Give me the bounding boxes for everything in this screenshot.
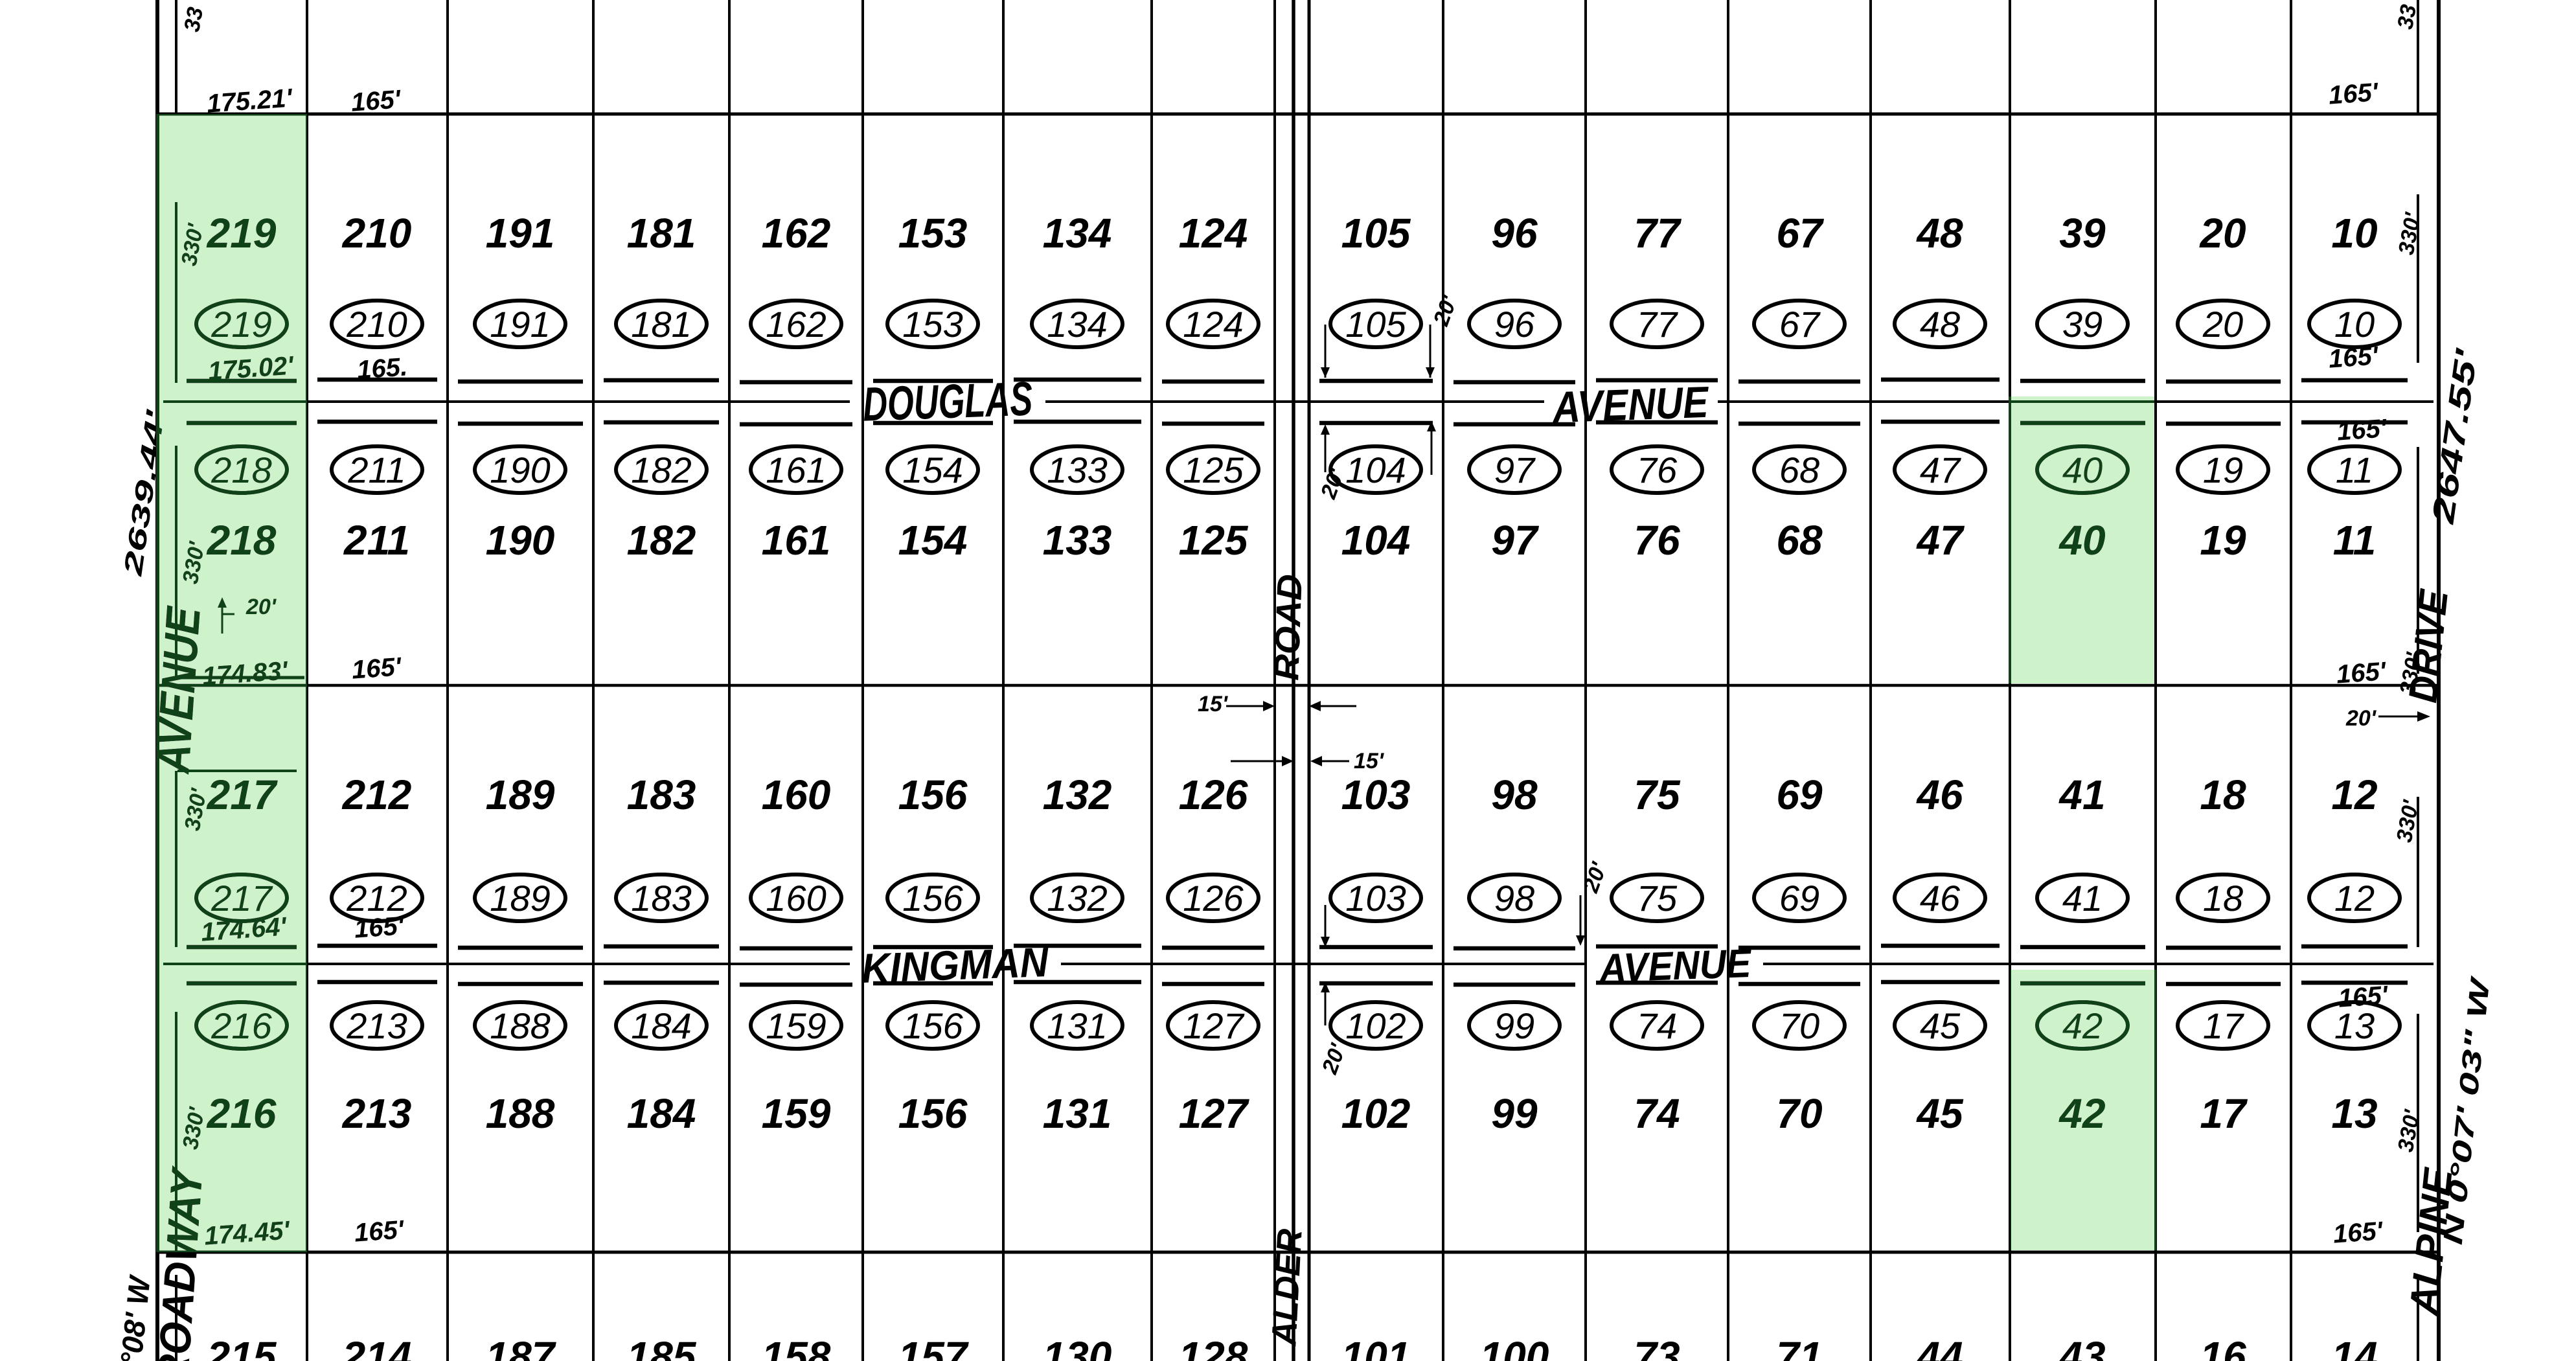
svg-text:157: 157 (898, 1333, 970, 1361)
svg-text:188: 188 (490, 1005, 550, 1046)
svg-text:181: 181 (627, 210, 696, 257)
svg-text:67: 67 (1776, 210, 1825, 257)
svg-text:104: 104 (1341, 517, 1411, 564)
svg-text:ROAD: ROAD (1267, 573, 1310, 681)
svg-text:210: 210 (342, 210, 412, 257)
svg-text:68: 68 (1779, 450, 1819, 490)
svg-text:165': 165' (2336, 657, 2388, 689)
svg-text:125: 125 (1179, 517, 1249, 564)
svg-text:187: 187 (486, 1333, 557, 1361)
svg-text:102: 102 (1341, 1090, 1411, 1137)
svg-text:156: 156 (902, 878, 963, 919)
svg-text:45: 45 (1915, 1090, 1964, 1137)
svg-text:104: 104 (1345, 450, 1406, 490)
svg-text:19: 19 (2200, 517, 2246, 564)
svg-text:161: 161 (766, 450, 826, 490)
svg-text:165': 165' (2336, 414, 2389, 446)
svg-text:162: 162 (762, 210, 831, 257)
svg-text:14: 14 (2331, 1333, 2377, 1361)
svg-text:43: 43 (2058, 1333, 2105, 1361)
svg-text:184: 184 (631, 1005, 691, 1046)
svg-text:103: 103 (1341, 772, 1411, 818)
svg-text:76: 76 (1637, 450, 1678, 490)
svg-text:12: 12 (2334, 878, 2375, 919)
svg-text:189: 189 (486, 772, 555, 818)
svg-text:39: 39 (2059, 210, 2106, 257)
svg-text:160: 160 (762, 772, 831, 818)
svg-text:190: 190 (486, 517, 555, 564)
svg-text:158: 158 (762, 1333, 831, 1361)
svg-text:96: 96 (1494, 304, 1535, 345)
svg-text:102: 102 (1345, 1005, 1406, 1046)
svg-text:46: 46 (1920, 878, 1961, 919)
svg-text:ALDER: ALDER (1264, 1228, 1309, 1348)
svg-text:131: 131 (1043, 1090, 1112, 1137)
svg-text:165': 165' (2328, 341, 2380, 373)
svg-text:175.21': 175.21' (206, 84, 294, 118)
svg-text:126: 126 (1179, 772, 1248, 818)
svg-text:185: 185 (627, 1333, 697, 1361)
svg-text:75: 75 (1634, 772, 1681, 818)
svg-text:69: 69 (1779, 878, 1819, 919)
svg-text:153: 153 (902, 304, 963, 345)
svg-text:156: 156 (902, 1005, 963, 1046)
svg-text:99: 99 (1491, 1090, 1538, 1137)
svg-text:46: 46 (1915, 772, 1963, 818)
svg-text:68: 68 (1776, 517, 1823, 564)
svg-text:133: 133 (1043, 517, 1112, 564)
svg-text:98: 98 (1491, 772, 1538, 818)
svg-text:124: 124 (1179, 210, 1248, 257)
svg-text:75: 75 (1637, 878, 1678, 919)
svg-text:165': 165' (2338, 981, 2390, 1012)
svg-text:211: 211 (343, 517, 410, 564)
svg-text:AVENUE: AVENUE (1551, 378, 1711, 432)
svg-text:183: 183 (627, 772, 696, 818)
svg-text:156: 156 (898, 1090, 968, 1137)
svg-text:128: 128 (1179, 1333, 1248, 1361)
svg-text:97: 97 (1494, 450, 1536, 490)
svg-text:17: 17 (2203, 1005, 2244, 1046)
svg-text:20': 20' (2345, 706, 2377, 731)
svg-text:132: 132 (1047, 878, 1107, 919)
svg-text:67: 67 (1779, 304, 1821, 345)
svg-text:165': 165' (350, 85, 403, 117)
svg-text:18: 18 (2200, 772, 2246, 818)
svg-text:154: 154 (898, 517, 968, 564)
svg-text:127: 127 (1183, 1005, 1244, 1046)
svg-text:153: 153 (898, 210, 968, 257)
svg-text:70: 70 (1779, 1005, 1819, 1046)
svg-text:130: 130 (1043, 1333, 1112, 1361)
svg-text:KINGMAN: KINGMAN (861, 939, 1050, 992)
svg-text:71: 71 (1776, 1333, 1822, 1361)
svg-text:183: 183 (631, 878, 691, 919)
svg-text:70: 70 (1776, 1090, 1822, 1137)
svg-text:77: 77 (1634, 210, 1682, 257)
svg-text:103: 103 (1345, 878, 1406, 919)
svg-text:213: 213 (346, 1005, 407, 1046)
svg-text:97: 97 (1491, 517, 1540, 564)
svg-text:101: 101 (1341, 1333, 1411, 1361)
svg-text:74: 74 (1634, 1090, 1680, 1137)
svg-text:20: 20 (2199, 210, 2246, 257)
svg-text:160: 160 (766, 878, 826, 919)
svg-text:11: 11 (2333, 517, 2376, 564)
svg-text:132: 132 (1043, 772, 1112, 818)
svg-text:96: 96 (1491, 210, 1538, 257)
svg-text:156: 156 (898, 772, 968, 818)
svg-text:10: 10 (2331, 210, 2377, 257)
svg-text:162: 162 (766, 304, 826, 345)
svg-text:69: 69 (1776, 772, 1823, 818)
svg-text:98: 98 (1494, 878, 1534, 919)
svg-text:133: 133 (1047, 450, 1107, 490)
svg-text:165': 165' (2328, 78, 2380, 109)
svg-text:45: 45 (1920, 1005, 1961, 1046)
svg-text:48: 48 (1920, 304, 1960, 345)
svg-text:211: 211 (347, 450, 405, 490)
svg-text:182: 182 (627, 517, 696, 564)
svg-text:181: 181 (631, 304, 691, 345)
svg-text:191: 191 (490, 304, 550, 345)
svg-text:131: 131 (1047, 1005, 1107, 1046)
svg-text:165': 165' (351, 652, 404, 684)
svg-text:127: 127 (1179, 1090, 1250, 1137)
svg-text:184: 184 (627, 1090, 696, 1137)
svg-text:12: 12 (2331, 772, 2377, 818)
svg-text:212: 212 (342, 772, 412, 818)
svg-text:165.: 165. (356, 352, 409, 384)
svg-text:165': 165' (354, 1215, 406, 1247)
svg-text:33: 33 (2393, 3, 2421, 31)
svg-text:124: 124 (1183, 304, 1243, 345)
svg-text:33: 33 (179, 5, 208, 34)
svg-text:165': 165' (2332, 1217, 2385, 1248)
svg-text:16: 16 (2200, 1333, 2246, 1361)
svg-text:17: 17 (2200, 1090, 2248, 1137)
svg-text:76: 76 (1634, 517, 1680, 564)
svg-text:134: 134 (1047, 304, 1107, 345)
svg-text:39: 39 (2062, 304, 2103, 345)
svg-text:191: 191 (486, 210, 555, 257)
svg-text:74: 74 (1637, 1005, 1677, 1046)
svg-text:20: 20 (2202, 304, 2243, 345)
svg-text:182: 182 (631, 450, 691, 490)
svg-text:126: 126 (1183, 878, 1244, 919)
svg-text:165': 165' (354, 911, 406, 943)
svg-text:159: 159 (762, 1090, 831, 1137)
svg-text:19: 19 (2203, 450, 2243, 490)
svg-text:125: 125 (1183, 450, 1244, 490)
svg-text:AVENUE: AVENUE (1597, 941, 1753, 991)
svg-text:99: 99 (1494, 1005, 1534, 1046)
svg-text:210: 210 (346, 304, 407, 345)
svg-text:105: 105 (1341, 210, 1411, 257)
svg-text:15': 15' (1198, 692, 1229, 716)
svg-text:154: 154 (902, 450, 963, 490)
svg-text:161: 161 (762, 517, 831, 564)
svg-text:41: 41 (2062, 878, 2103, 919)
svg-text:189: 189 (490, 878, 550, 919)
svg-text:214: 214 (342, 1333, 412, 1361)
svg-text:105: 105 (1345, 304, 1406, 345)
svg-text:159: 159 (766, 1005, 826, 1046)
svg-text:190: 190 (490, 450, 550, 490)
svg-text:134: 134 (1043, 210, 1112, 257)
svg-text:18: 18 (2203, 878, 2243, 919)
svg-text:188: 188 (486, 1090, 555, 1137)
svg-text:48: 48 (1915, 210, 1963, 257)
svg-text:15': 15' (1354, 749, 1385, 773)
svg-text:10: 10 (2334, 304, 2375, 345)
svg-text:73: 73 (1634, 1333, 1680, 1361)
svg-text:47: 47 (1915, 517, 1965, 564)
svg-text:DOUGLAS: DOUGLAS (862, 371, 1034, 431)
svg-text:77: 77 (1637, 304, 1678, 345)
svg-text:213: 213 (342, 1090, 412, 1137)
svg-text:44: 44 (1915, 1333, 1963, 1361)
svg-text:47: 47 (1920, 450, 1961, 490)
svg-text:41: 41 (2058, 772, 2105, 818)
svg-text:100: 100 (1480, 1333, 1549, 1361)
svg-text:11: 11 (2336, 450, 2373, 490)
svg-text:215: 215 (207, 1333, 277, 1361)
svg-text:13: 13 (2331, 1090, 2377, 1137)
